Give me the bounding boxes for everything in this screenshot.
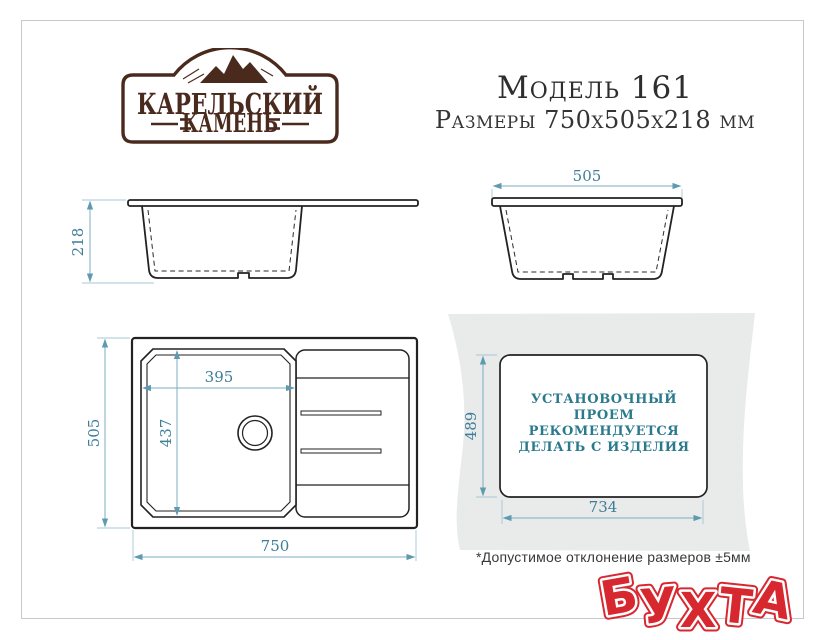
cutout-width-dim-label: 734 (589, 498, 618, 516)
cutout-depth-dim-label: 489 (462, 412, 480, 441)
watermark-logo: БУХТА БУХТА (596, 560, 816, 640)
side-section-view: 505 (450, 165, 715, 290)
overall-width-dim-label: 750 (261, 537, 290, 555)
watermark-text: БУХТА (596, 566, 797, 639)
cutout-note-line2: ПРОЕМ (574, 408, 635, 423)
front-section-view: 218 (68, 168, 430, 293)
bowl-width-dim-label: 395 (205, 368, 234, 386)
overall-depth-dim-label: 505 (85, 419, 103, 448)
brand-logo: КАРЕЛЬСКИЙ КАМЕНЬ (121, 48, 339, 144)
front-rim (128, 200, 418, 206)
brand-name-line2: КАМЕНЬ (182, 109, 278, 139)
page: КАРЕЛЬСКИЙ КАМЕНЬ Модель 161 Размеры 750… (0, 0, 824, 640)
side-rim (492, 198, 682, 206)
cutout-note-line1: УСТАНОВОЧНЫЙ (531, 390, 677, 407)
install-cutout-view: УСТАНОВОЧНЫЙ ПРОЕМ РЕКОМЕНДУЕТСЯ ДЕЛАТЬ … (440, 300, 775, 560)
cutout-note-line3: РЕКОМЕНДУЕТСЯ (529, 424, 680, 439)
title-block: Модель 161 Размеры 750х505х218 мм (430, 72, 760, 135)
width-dim-label: 505 (573, 167, 602, 185)
front-bowl-outline (142, 206, 302, 278)
side-bowl-outline (500, 206, 674, 279)
height-dim-label: 218 (69, 228, 87, 257)
cutout-note-line4: ДЕЛАТЬ С ИЗДЕЛИЯ (518, 440, 689, 455)
top-view: 395 437 505 750 (85, 330, 430, 572)
overall-dimensions: Размеры 750х505х218 мм (430, 105, 760, 135)
bowl-depth-dim-label: 437 (157, 419, 175, 448)
model-title: Модель 161 (430, 72, 760, 105)
